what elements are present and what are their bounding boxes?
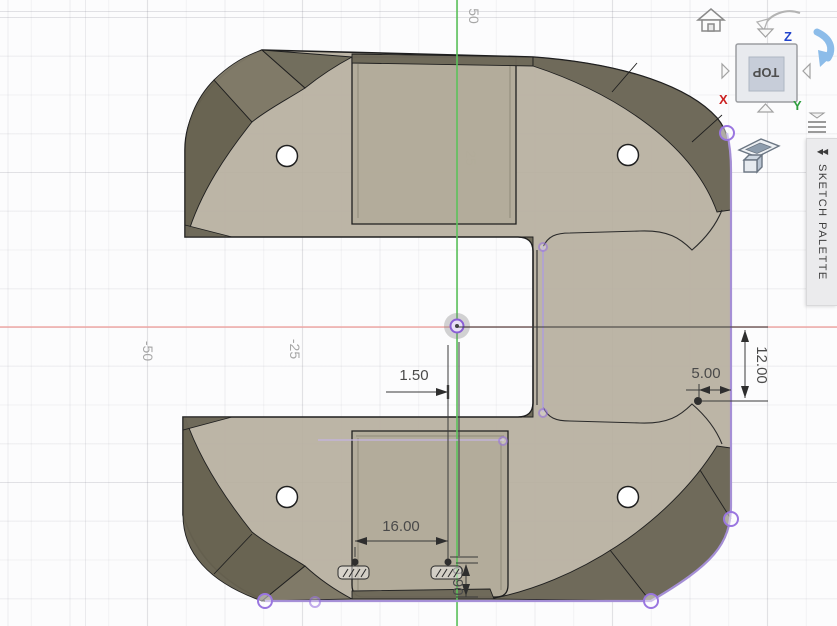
grid-label-y-50: 50	[466, 8, 482, 24]
grid-label-x-neg50: -50	[140, 341, 156, 361]
top-pocket-face[interactable]	[352, 57, 516, 224]
grid-label-x-neg25: -25	[287, 339, 303, 359]
sketch-palette-panel[interactable]: ◀◀ SKETCH PALETTE	[806, 138, 837, 306]
collapse-panel-icon[interactable]: ◀◀	[817, 147, 827, 156]
viewcube[interactable]: TOP X Y Z	[719, 29, 810, 113]
dimension-value-1-50[interactable]: 1.50	[399, 367, 428, 384]
rotate-arrow-icon[interactable]	[817, 32, 834, 67]
viewcube-arrow-up-icon	[758, 29, 773, 37]
dimension-value-12-00[interactable]: 12.00	[753, 346, 770, 384]
viewcube-arrow-right-icon	[803, 64, 810, 78]
origin-marker[interactable]	[444, 313, 470, 339]
hole-top-left[interactable]	[277, 146, 298, 167]
viewcube-menu-icon[interactable]	[808, 113, 826, 132]
axis-label-y: Y	[793, 98, 802, 113]
bottom-pocket-face[interactable]	[352, 431, 508, 597]
fusion-sketch-viewport[interactable]: -50 -25 25 50	[0, 0, 837, 626]
orbit-arrow-icon[interactable]	[757, 11, 800, 30]
axis-label-x: X	[719, 92, 728, 107]
sketch-canvas[interactable]: -50 -25 25 50	[0, 0, 837, 626]
dimension-value-16-00[interactable]: 16.00	[382, 518, 420, 535]
hole-bottom-right[interactable]	[618, 487, 639, 508]
axis-label-z: Z	[784, 29, 792, 44]
viewcube-arrow-left-icon	[722, 64, 729, 78]
dimension-value-5-00[interactable]: 5.00	[691, 365, 720, 382]
viewcube-face-label[interactable]: TOP	[752, 65, 779, 80]
home-icon[interactable]	[698, 9, 724, 31]
sketch-plane-icon[interactable]	[739, 139, 779, 172]
hole-top-right[interactable]	[618, 145, 639, 166]
sketch-palette-title: SKETCH PALETTE	[816, 164, 828, 281]
hole-bottom-left[interactable]	[277, 487, 298, 508]
viewcube-arrow-down-icon	[758, 104, 773, 112]
